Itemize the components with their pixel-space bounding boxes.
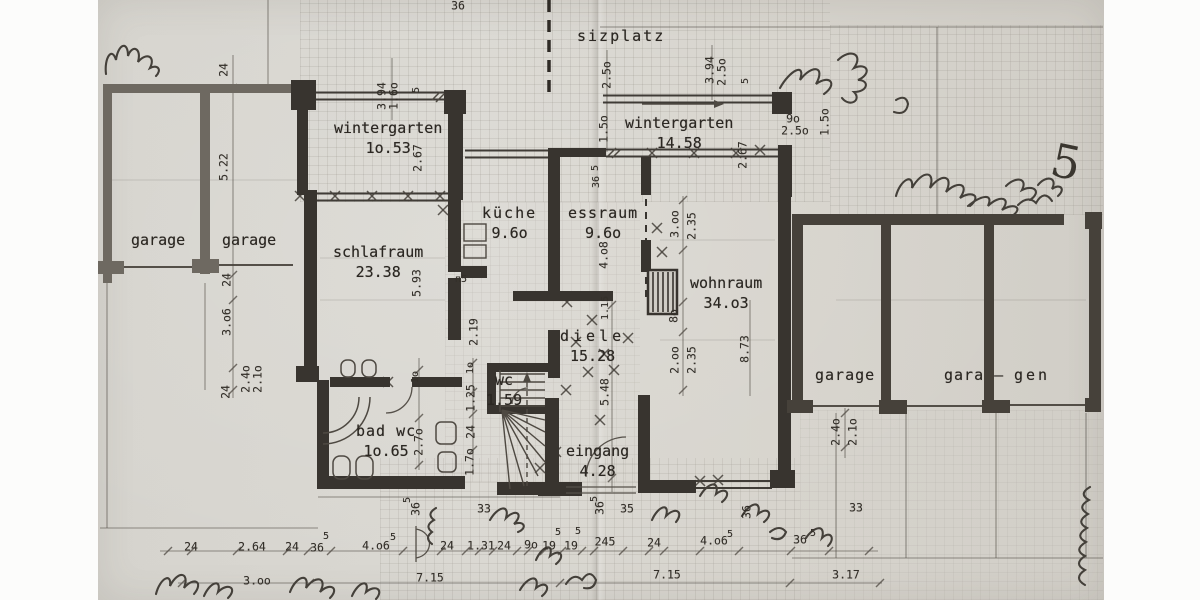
dimension-label: 1.25 bbox=[465, 384, 477, 412]
dimension-label: 1.7o bbox=[464, 448, 476, 476]
dimension-label: 36 bbox=[410, 502, 422, 516]
dimension-label: 8o bbox=[668, 309, 680, 323]
dimension-label: 5 bbox=[575, 527, 581, 537]
dimension-label: 2.35 bbox=[686, 346, 698, 374]
dimension-label: 2.oo bbox=[669, 346, 681, 374]
dimension-label: 5.22 bbox=[218, 153, 230, 181]
dimension-label: 2.64 bbox=[238, 541, 266, 553]
dimension-label: 5.48 bbox=[599, 378, 611, 406]
room-label: wintergarten14.58 bbox=[625, 114, 733, 153]
dimension-label: 24 bbox=[440, 540, 454, 552]
room-name: garage bbox=[222, 231, 276, 251]
dimension-label: 33 bbox=[849, 502, 863, 514]
dimension-label: 245 bbox=[595, 536, 616, 548]
room-name: garage bbox=[815, 366, 875, 386]
dimension-label: 5 bbox=[390, 533, 396, 543]
dimension-label: 1.5o bbox=[819, 108, 831, 136]
dimension-label: 5 bbox=[323, 532, 329, 542]
dimension-label: 19 bbox=[564, 540, 578, 552]
dimension-label: 24 bbox=[465, 425, 477, 439]
dimension-label: 24 bbox=[285, 541, 299, 553]
dimension-label: 24 bbox=[220, 385, 232, 399]
room-name: eingang bbox=[566, 442, 629, 462]
dimension-label: 2.35 bbox=[686, 212, 698, 240]
dimension-label: 1.15 bbox=[601, 296, 611, 320]
dimension-label: 36 bbox=[741, 505, 753, 519]
room-name: sizplatz bbox=[577, 27, 665, 47]
dimension-label: 9o bbox=[524, 539, 538, 551]
room-name: schlafraum bbox=[333, 243, 423, 263]
room-label: bad wc1o.65 bbox=[356, 422, 416, 461]
dimension-label: 5 bbox=[412, 87, 422, 93]
dimension-label: 2.67 bbox=[412, 144, 424, 172]
room-name: wc bbox=[486, 371, 522, 391]
dimension-label: 24 bbox=[497, 540, 511, 552]
dimension-label: 4.o6 bbox=[700, 535, 728, 547]
dimension-label: 5 bbox=[555, 528, 561, 538]
dimension-label: 2.19 bbox=[468, 318, 480, 346]
dimension-label: 5 bbox=[810, 529, 816, 539]
room-label: gen bbox=[1014, 366, 1050, 386]
dimension-label: 5 bbox=[727, 530, 733, 540]
dimension-label: 2.5o bbox=[716, 58, 728, 86]
room-area: 1o.53 bbox=[334, 139, 442, 159]
dimension-label: 5 bbox=[741, 78, 751, 84]
room-name: diele bbox=[560, 327, 625, 347]
dimension-label: 4.o8 bbox=[598, 241, 610, 269]
dimension-label: 4.o6 bbox=[362, 540, 390, 552]
room-area: 4.28 bbox=[566, 462, 629, 482]
dimension-label: 1.5o bbox=[598, 115, 610, 143]
dimension-label: 8.73 bbox=[739, 335, 751, 363]
dimension-label: 7.15 bbox=[416, 572, 444, 584]
dimension-label: п5 bbox=[455, 275, 467, 285]
room-area: 9.6o bbox=[482, 224, 537, 244]
dimension-label: 7.15 bbox=[653, 569, 681, 581]
dimension-label: 3.17 bbox=[832, 569, 860, 581]
dimension-label: 24 bbox=[221, 273, 233, 287]
room-label: wc1.59 bbox=[486, 371, 522, 410]
dimension-label: 5 bbox=[590, 496, 600, 502]
dimension-label: 36 bbox=[592, 176, 602, 188]
room-label: wintergarten1o.53 bbox=[334, 119, 442, 158]
room-label: sizplatz bbox=[577, 27, 665, 47]
room-label: essraum9.6o bbox=[568, 204, 638, 243]
dimension-label: 36 bbox=[793, 534, 807, 546]
dimension-label: 2.67 bbox=[737, 141, 749, 169]
dimension-label: 3.oo bbox=[243, 575, 271, 587]
dimension-label: 2.5o bbox=[781, 125, 809, 137]
room-label: küche9.6o bbox=[482, 204, 537, 243]
dimension-label: 3.o6 bbox=[221, 308, 233, 336]
dimension-label: 24 bbox=[218, 63, 230, 77]
dimension-label: 36 bbox=[594, 501, 606, 515]
room-area: 1.59 bbox=[486, 391, 522, 411]
room-name: küche bbox=[482, 204, 537, 224]
dimension-label: 1o bbox=[466, 362, 476, 374]
room-label: diele15.28 bbox=[560, 327, 625, 366]
dimension-label: 2.5o bbox=[601, 61, 613, 89]
dimension-label: 36 bbox=[310, 542, 324, 554]
handwritten-note: 5 bbox=[1047, 136, 1085, 187]
room-area: 1o.65 bbox=[356, 442, 416, 462]
dimension-label: 1.31 bbox=[467, 540, 495, 552]
room-label: garage bbox=[815, 366, 875, 386]
dimension-label: 24 bbox=[184, 541, 198, 553]
room-name: gen bbox=[1014, 366, 1050, 386]
room-name: wintergarten bbox=[334, 119, 442, 139]
dimension-label: 33 bbox=[477, 503, 491, 515]
dimension-label: 3.oo bbox=[669, 210, 681, 238]
room-name: gara – bbox=[944, 366, 1004, 386]
label-layer: sizplatzwintergarten1o.53wintergarten14.… bbox=[0, 0, 1200, 600]
dimension-label: 35 bbox=[620, 503, 634, 515]
room-name: garage bbox=[131, 231, 185, 251]
dimension-label: 2.1o bbox=[252, 365, 264, 393]
dimension-label: 1.6o bbox=[388, 82, 400, 110]
room-label: garage bbox=[131, 231, 185, 251]
dimension-label: 2.4o bbox=[830, 418, 842, 446]
dimension-label: 5 bbox=[591, 165, 601, 171]
dimension-label: 19 bbox=[542, 540, 556, 552]
dimension-label: 1o bbox=[411, 371, 421, 383]
room-area: 34.o3 bbox=[690, 294, 762, 314]
room-label: eingang4.28 bbox=[566, 442, 629, 481]
room-name: essraum bbox=[568, 204, 638, 224]
room-name: wintergarten bbox=[625, 114, 733, 134]
room-name: wohnraum bbox=[690, 274, 762, 294]
dimension-label: 24 bbox=[647, 537, 661, 549]
dimension-label: 36 bbox=[451, 0, 465, 12]
dimension-label: 2.1o bbox=[847, 418, 859, 446]
room-label: gara – bbox=[944, 366, 1004, 386]
room-area: 15.28 bbox=[560, 347, 625, 367]
floor-plan-scan: sizplatzwintergarten1o.53wintergarten14.… bbox=[0, 0, 1200, 600]
room-name: bad wc bbox=[356, 422, 416, 442]
dimension-label: 2.7o bbox=[413, 428, 425, 456]
dimension-label: 5.93 bbox=[411, 269, 423, 297]
room-label: wohnraum34.o3 bbox=[690, 274, 762, 313]
room-area: 14.58 bbox=[625, 134, 733, 154]
room-label: garage bbox=[222, 231, 276, 251]
